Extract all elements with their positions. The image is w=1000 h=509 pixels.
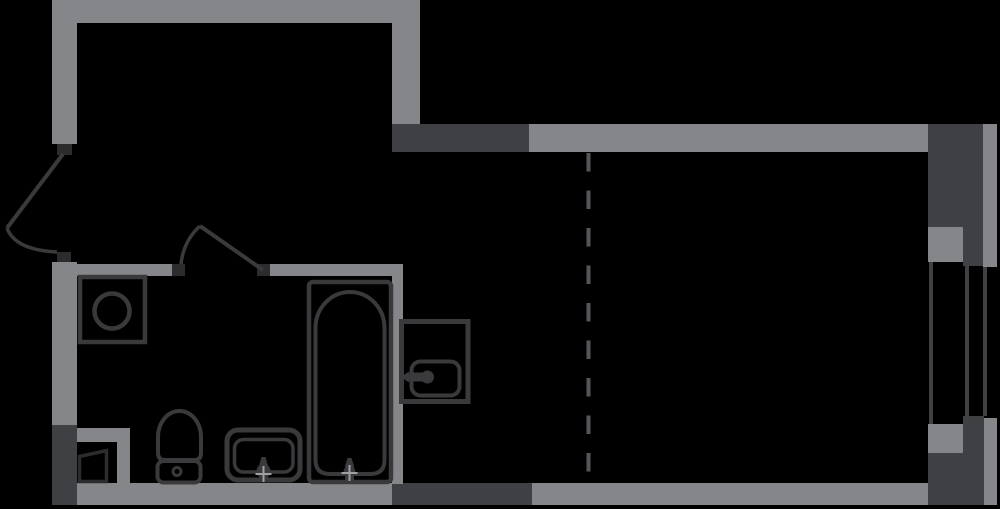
kitchen-faucet-head: [421, 371, 434, 384]
bottom-wall-right: [532, 483, 930, 505]
window-glass-line-middle: [965, 266, 969, 416]
window-glass-line-outer: [983, 267, 987, 416]
window-upper-sill-gray: [928, 227, 963, 262]
hall-top-wall: [52, 0, 420, 23]
entry-door-hinge-block-top: [57, 144, 72, 155]
left-wall-middle: [52, 262, 77, 425]
floor-plan: [0, 0, 1000, 509]
window-upper-gray-outer: [983, 124, 997, 267]
shaft-niche-top-wall: [77, 428, 130, 442]
window-upper-dark-inner: [928, 124, 963, 227]
window-upper-dark-mid: [963, 124, 983, 266]
bottom-wall-dark-segment: [392, 483, 532, 505]
bathroom-top-wall-right: [270, 264, 403, 276]
bathroom-door-hinge-block-left: [172, 264, 185, 276]
top-wall-main: [529, 124, 928, 152]
top-wall-dark-segment: [392, 124, 529, 152]
hall-left-wall-upper: [52, 0, 77, 144]
entry-door-hinge-block-bottom: [57, 252, 71, 262]
bottom-wall-left: [77, 483, 392, 505]
window-lower-dark-mid: [963, 416, 984, 505]
plan-background: [0, 0, 1000, 509]
shaft-niche-right-wall: [117, 442, 130, 483]
window-lower-gray-outer: [984, 418, 997, 505]
window-lower-dark-inner: [928, 453, 963, 505]
left-wall-dark-block: [52, 425, 77, 505]
bathroom-top-wall-left: [77, 264, 172, 276]
floor-plan-canvas: [0, 0, 1000, 509]
window-glass-line-inner: [929, 262, 933, 424]
window-lower-sill-gray: [928, 424, 963, 453]
hall-right-wall: [392, 23, 420, 124]
